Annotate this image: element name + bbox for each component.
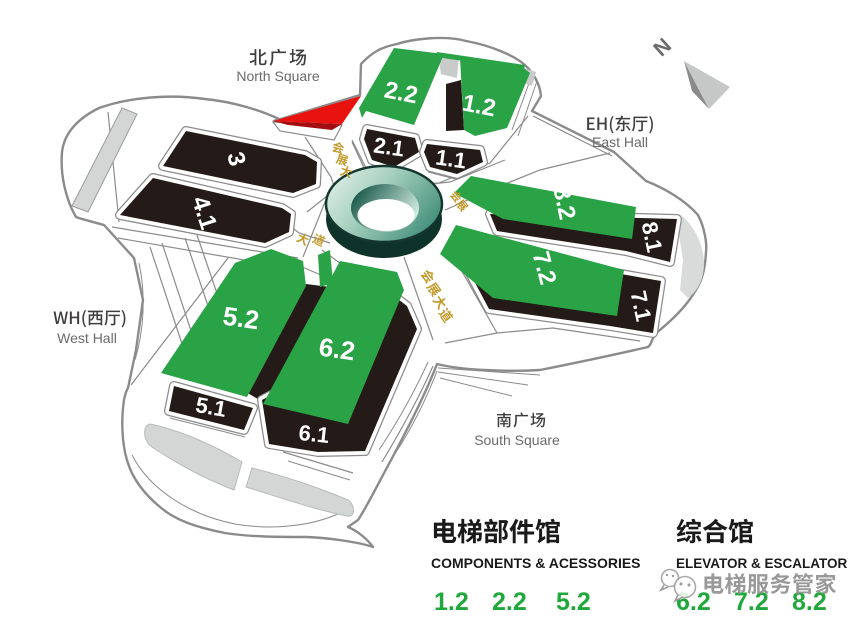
svg-text:5.2: 5.2 xyxy=(556,588,591,616)
svg-text:East Hall: East Hall xyxy=(592,134,648,150)
svg-text:5.2: 5.2 xyxy=(221,301,261,336)
svg-text:North Square: North Square xyxy=(236,68,319,84)
svg-text:1.1: 1.1 xyxy=(434,144,468,173)
svg-text:2.2: 2.2 xyxy=(492,588,527,616)
svg-text:ELEVATOR & ESCALATOR: ELEVATOR & ESCALATOR xyxy=(676,556,848,571)
svg-text:COMPONENTS & ACESSORIES: COMPONENTS & ACESSORIES xyxy=(431,555,641,571)
svg-text:N: N xyxy=(649,34,676,61)
svg-text:2.1: 2.1 xyxy=(372,132,406,161)
svg-text:1.2: 1.2 xyxy=(434,588,469,616)
svg-text:6.2: 6.2 xyxy=(317,332,357,367)
svg-text:West Hall: West Hall xyxy=(57,330,117,346)
svg-text:5.1: 5.1 xyxy=(194,392,228,422)
svg-text:South Square: South Square xyxy=(474,432,560,448)
svg-text:6.1: 6.1 xyxy=(297,420,330,448)
